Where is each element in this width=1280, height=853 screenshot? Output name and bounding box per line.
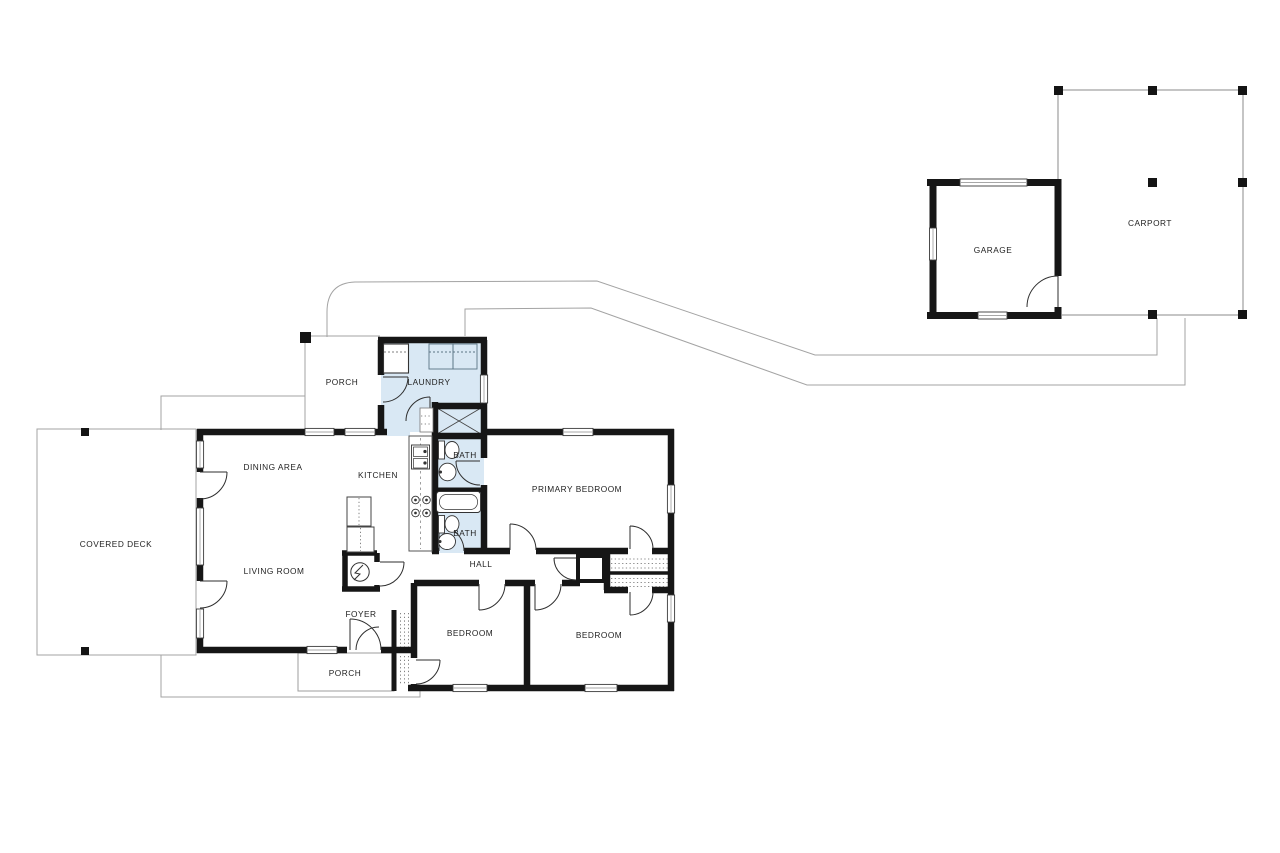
electrical-panel-icon (351, 563, 369, 581)
closet-shelves-bedroom-left (401, 656, 409, 685)
sink-icon-primary-bath (439, 463, 456, 481)
front-door (350, 619, 381, 650)
carport-outline (1058, 90, 1243, 315)
room-label-primary-bedroom: PRIMARY BEDROOM (532, 484, 622, 494)
bedroom-left-door (479, 584, 505, 610)
bedroom-right-closet-door (630, 592, 653, 615)
primary-bedroom-door (510, 524, 536, 550)
room-label-porch-bottom: PORCH (329, 668, 361, 678)
kitchen-sink-icon (412, 445, 430, 469)
room-label-kitchen: KITCHEN (358, 470, 398, 480)
room-label-foyer: FOYER (345, 609, 376, 619)
deck-post-top (81, 428, 89, 436)
room-label-bath-hall: BATH (453, 528, 477, 538)
room-label-covered-deck: COVERED DECK (80, 539, 152, 549)
room-label-living-room: LIVING ROOM (244, 566, 305, 576)
room-label-bedroom-left: BEDROOM (447, 628, 493, 638)
closet-shelves-bedroom-right (611, 579, 668, 587)
room-label-carport: CARPORT (1128, 218, 1172, 228)
room-label-hall: HALL (470, 559, 493, 569)
room-label-bath-primary: BATH (453, 450, 477, 460)
room-label-garage: GARAGE (974, 245, 1013, 255)
hall-vestibule-door (554, 558, 576, 580)
floor-plan-canvas: COVERED DECK PORCH LAUNDRY DINING AREA K… (0, 0, 1280, 853)
hall-vestibule (578, 556, 604, 581)
porch-post (300, 332, 311, 343)
room-label-porch-top: PORCH (326, 377, 358, 387)
washer-icon (384, 344, 409, 373)
deck-post-bottom (81, 647, 89, 655)
closet-shelves-foyer (401, 613, 409, 647)
electrical-closet-door (380, 562, 404, 586)
kitchen-shelf (420, 408, 433, 432)
bedroom-right-door (535, 584, 561, 610)
walkway-path-lower (465, 308, 1185, 385)
dining-deck-door (200, 472, 227, 499)
laundry-kitchen-doorway-floor (387, 428, 410, 436)
floor-plan-page: COVERED DECK PORCH LAUNDRY DINING AREA K… (0, 0, 1280, 853)
ground-strip-top-left (161, 396, 305, 430)
closet-shelves-primary (611, 559, 668, 568)
room-label-dining-area: DINING AREA (244, 462, 303, 472)
bedroom-left-closet-door (416, 660, 440, 684)
pantry-cabinets (347, 497, 374, 552)
living-deck-door (200, 581, 227, 608)
carport (1054, 86, 1247, 319)
room-label-laundry: LAUNDRY (408, 377, 451, 387)
bathtub-icon (437, 492, 481, 513)
primary-closet-door (630, 526, 653, 549)
room-label-bedroom-right: BEDROOM (576, 630, 622, 640)
